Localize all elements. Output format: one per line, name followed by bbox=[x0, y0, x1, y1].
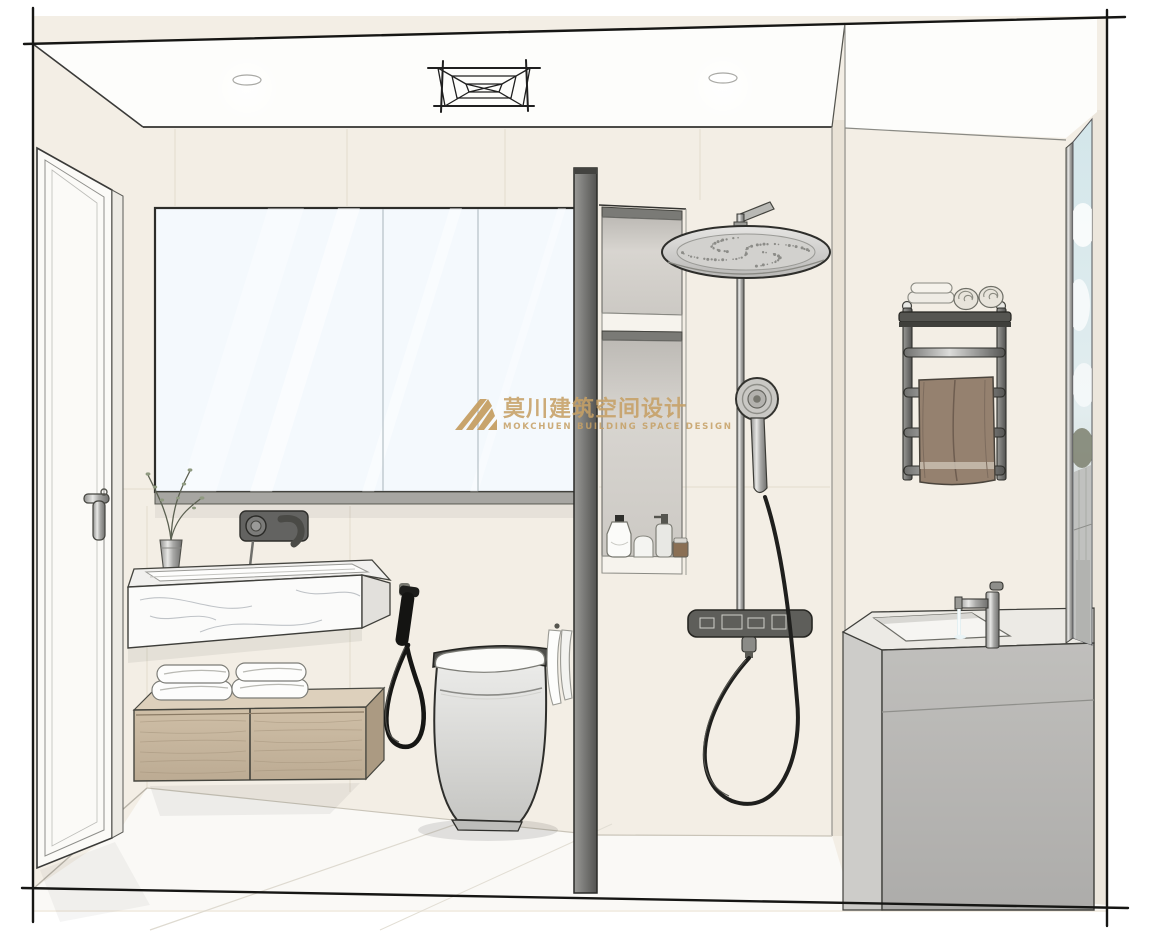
niche-upper bbox=[602, 217, 682, 315]
watermark-title: 莫川建筑空间设计 bbox=[503, 396, 687, 422]
downlight-glow bbox=[689, 52, 757, 120]
downlight-icon bbox=[233, 75, 261, 85]
vanity-front bbox=[882, 643, 1094, 910]
niche-shelf bbox=[602, 313, 682, 332]
greenery bbox=[1070, 428, 1094, 468]
right-vanity bbox=[843, 582, 1094, 910]
lotion-bottle bbox=[656, 524, 672, 557]
smart-toilet bbox=[433, 646, 549, 831]
jar bbox=[673, 541, 688, 557]
rack-shelf bbox=[899, 312, 1011, 322]
shower-mixer bbox=[688, 610, 812, 637]
partition-wall-edge bbox=[574, 168, 597, 893]
hand-shower bbox=[751, 418, 767, 493]
downlight-glow bbox=[213, 54, 281, 122]
downlight-icon bbox=[709, 73, 737, 83]
mirror-cabinet bbox=[155, 208, 575, 518]
window bbox=[1066, 119, 1096, 645]
watermark-subtitle: MOKCHUEN BUILDING SPACE DESIGN bbox=[503, 422, 733, 432]
wood-cabinet bbox=[134, 688, 384, 816]
brown-bath-towel bbox=[919, 377, 995, 485]
rendering-canvas: 莫川建筑空间设计 MOKCHUEN BUILDING SPACE DESIGN bbox=[0, 0, 1150, 932]
pump-bottle bbox=[607, 522, 631, 557]
bathroom-sketch-rendering: 莫川建筑空间设计 MOKCHUEN BUILDING SPACE DESIGN bbox=[0, 0, 1150, 932]
mirror-cabinet-underside bbox=[155, 492, 575, 504]
building bbox=[1076, 560, 1090, 645]
soap-pot bbox=[634, 536, 653, 557]
